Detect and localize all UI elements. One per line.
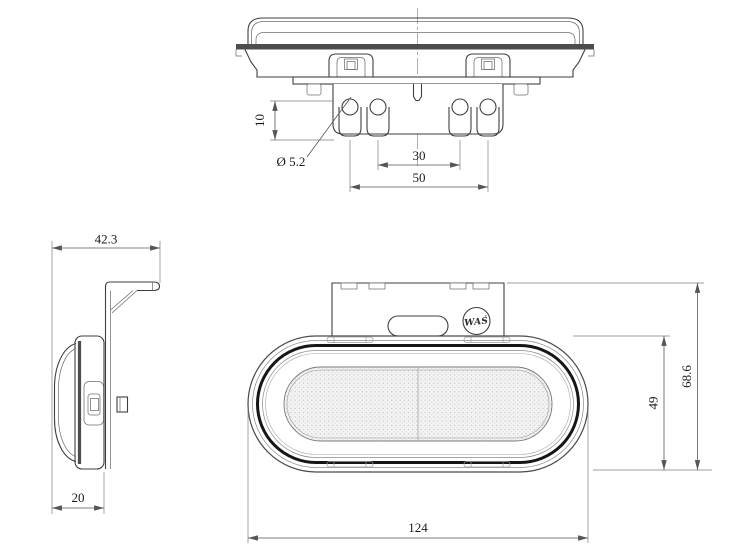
seam-band bbox=[236, 44, 594, 50]
lens-second-outline bbox=[252, 22, 580, 48]
dim-text-mounting-depth: 20 bbox=[72, 490, 85, 505]
oval-lens bbox=[248, 336, 588, 472]
side-tab-left bbox=[307, 84, 321, 95]
dim-lens-height: 49 bbox=[573, 336, 712, 470]
dim-text-overall-depth: 42.3 bbox=[95, 232, 118, 247]
housing-notch-1 bbox=[341, 283, 357, 289]
dim-text-pin-spacing-outer: 50 bbox=[413, 170, 426, 185]
lamp-side-body bbox=[55, 336, 128, 469]
base-outline bbox=[245, 50, 585, 78]
mounting-bracket bbox=[106, 282, 160, 469]
housing-notch-4 bbox=[473, 283, 489, 289]
seam-end-right bbox=[588, 50, 594, 57]
housing-notch-2 bbox=[369, 283, 385, 289]
connector-block bbox=[333, 84, 503, 136]
label-slot bbox=[388, 316, 448, 336]
housing-notch-3 bbox=[450, 283, 466, 289]
mounting-clip-right bbox=[466, 54, 510, 77]
front-view: WAŚ bbox=[248, 283, 712, 543]
side-view: 42.3 20 bbox=[52, 232, 160, 515]
technical-drawing: 10 Ø 5.2 30 50 bbox=[0, 0, 730, 553]
dim-pin-spacing-inner: 30 bbox=[378, 140, 460, 170]
dim-text-pin-spacing-inner: 30 bbox=[413, 148, 426, 163]
connector-stub bbox=[117, 397, 128, 412]
side-tab-right bbox=[514, 84, 528, 95]
lens-dome-inner bbox=[59, 349, 77, 457]
drawing-page: 10 Ø 5.2 30 50 bbox=[0, 0, 730, 553]
dim-text-lens-height: 49 bbox=[646, 397, 661, 410]
dim-text-pin-length: 10 bbox=[252, 114, 267, 127]
dim-text-overall-height: 68.6 bbox=[679, 365, 694, 388]
lens-dome-outer bbox=[55, 344, 77, 462]
mounting-clip-left bbox=[329, 54, 373, 77]
dim-text-overall-width: 124 bbox=[408, 520, 428, 535]
manufacturer-logo: WAŚ bbox=[463, 308, 490, 335]
top-view: 10 Ø 5.2 30 50 bbox=[236, 8, 594, 192]
lamp-top-body bbox=[236, 18, 594, 77]
dim-mounting-depth: 20 bbox=[52, 472, 104, 514]
dim-text-pin-diameter: Ø 5.2 bbox=[277, 154, 306, 169]
dim-pin-length: 10 bbox=[252, 101, 334, 140]
seam-end-left bbox=[236, 50, 242, 57]
